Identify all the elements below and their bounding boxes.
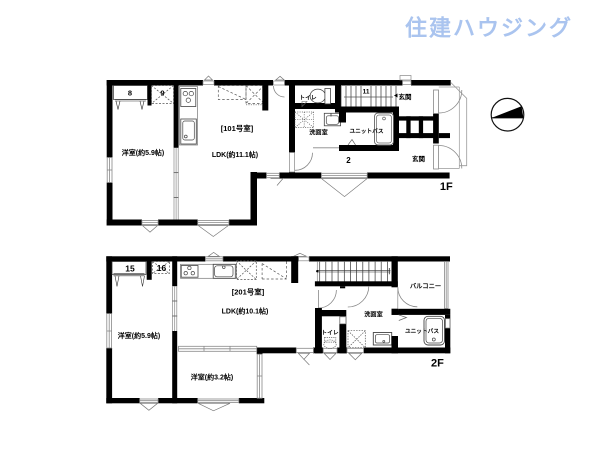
svg-text:洗面室: 洗面室 xyxy=(309,129,328,137)
svg-text:トイレ: トイレ xyxy=(299,94,317,101)
svg-text:LDK(約10.1帖): LDK(約10.1帖) xyxy=(222,307,269,316)
svg-text:[101号室]: [101号室] xyxy=(221,123,254,133)
svg-text:洋室(約3.2帖): 洋室(約3.2帖) xyxy=(191,373,233,382)
svg-text:1F: 1F xyxy=(440,181,453,193)
svg-text:[201号室]: [201号室] xyxy=(232,287,265,297)
svg-text:玄関: 玄関 xyxy=(399,92,413,101)
svg-text:15: 15 xyxy=(125,264,135,274)
svg-text:トイレ: トイレ xyxy=(321,330,339,337)
svg-text:2: 2 xyxy=(346,156,351,165)
svg-text:9: 9 xyxy=(160,89,164,98)
svg-text:11: 11 xyxy=(363,89,370,96)
svg-text:バルコニー: バルコニー xyxy=(410,282,441,290)
svg-text:LDK(約11.1帖): LDK(約11.1帖) xyxy=(212,150,258,159)
svg-text:2F: 2F xyxy=(431,358,444,370)
svg-text:ユニットバス: ユニットバス xyxy=(349,128,383,135)
svg-text:洋室(約5.9帖): 洋室(約5.9帖) xyxy=(118,331,160,340)
svg-text:16: 16 xyxy=(157,263,167,273)
svg-text:洋室(約5.9帖): 洋室(約5.9帖) xyxy=(122,148,164,157)
svg-text:洗面室: 洗面室 xyxy=(364,311,383,319)
svg-text:玄関: 玄関 xyxy=(412,154,426,163)
svg-text:ユニットバス: ユニットバス xyxy=(405,328,439,335)
svg-text:8: 8 xyxy=(128,89,132,98)
svg-text:住建ハウジング: 住建ハウジング xyxy=(405,16,573,41)
